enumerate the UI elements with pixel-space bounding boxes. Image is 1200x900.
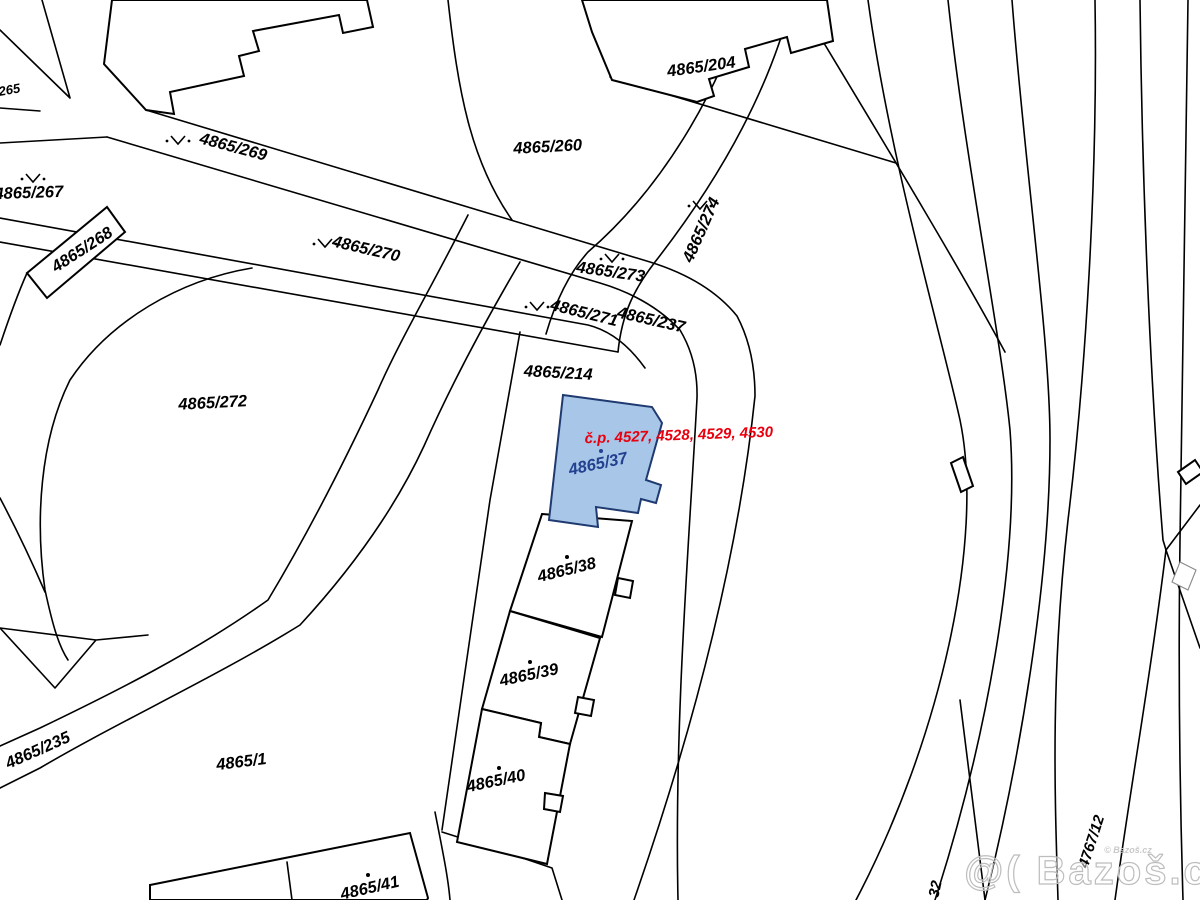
railway-line xyxy=(935,0,1012,900)
parcel-label-4865-270: 4865/270 xyxy=(330,232,403,265)
building-annex xyxy=(544,793,563,812)
building-outline xyxy=(104,0,373,114)
railway-line xyxy=(1055,0,1095,900)
parcel-label-4865-265: 4865/265 xyxy=(0,80,22,104)
parcel-boundary xyxy=(0,628,148,688)
parcel-boundary xyxy=(40,268,252,660)
building-outline xyxy=(1172,562,1196,590)
road-edge xyxy=(0,215,468,746)
parcel-label-4865-273: 4865/273 xyxy=(574,258,646,286)
building-centroid-dot xyxy=(366,873,370,877)
railway-line xyxy=(1179,0,1188,900)
parcel-label-4865-237: 4865/237 xyxy=(615,303,688,336)
railway-line xyxy=(1140,0,1166,550)
building-centroid-dot xyxy=(599,449,603,453)
building-annex xyxy=(575,697,594,716)
slope-symbol xyxy=(525,302,550,310)
building-centroid-dot xyxy=(528,660,532,664)
railway-line xyxy=(1166,505,1200,550)
parcel-label-4865-214: 4865/214 xyxy=(522,362,593,384)
parcel-label-4865-1: 4865/1 xyxy=(214,750,267,774)
parcel-label-4865-274: 4865/274 xyxy=(679,195,724,266)
cadastral-map-canvas: 4865/2654865/2674865/2684865/2694865/270… xyxy=(0,0,1200,900)
building-outline xyxy=(951,457,973,492)
building-centroid-dot xyxy=(565,555,569,559)
cadastral-map: 4865/2654865/2674865/2684865/2694865/270… xyxy=(0,0,1200,900)
parcel-label-4865-269: 4865/269 xyxy=(197,129,270,165)
parcel-boundary xyxy=(448,0,512,220)
parcel-label--Bazo-cz: © Bazoš.cz xyxy=(1104,845,1152,855)
slope-symbol xyxy=(600,254,625,262)
railway-line xyxy=(856,0,967,900)
parcel-label-4865-267: 4865/267 xyxy=(0,183,64,203)
slope-symbol xyxy=(166,136,191,144)
parcel-label-32: 32 xyxy=(926,878,946,898)
building-annex xyxy=(615,578,633,598)
parcel-boundary xyxy=(0,273,27,345)
building-outline xyxy=(582,0,833,102)
watermark-text: @( Bazoš.cz xyxy=(964,849,1200,893)
road-edge xyxy=(146,110,755,900)
parcel-label-4865-272: 4865/272 xyxy=(177,392,248,414)
slope-symbol xyxy=(21,174,46,182)
parcel-boundary xyxy=(0,498,45,592)
building-centroid-dot xyxy=(497,766,501,770)
parcel-label-4865-271: 4865/271 xyxy=(548,296,620,330)
railway-line xyxy=(985,0,1050,900)
parcel-label-4865-260: 4865/260 xyxy=(512,136,583,158)
parcel-label-4865-235: 4865/235 xyxy=(2,728,74,773)
parcel-boundary xyxy=(0,137,107,143)
